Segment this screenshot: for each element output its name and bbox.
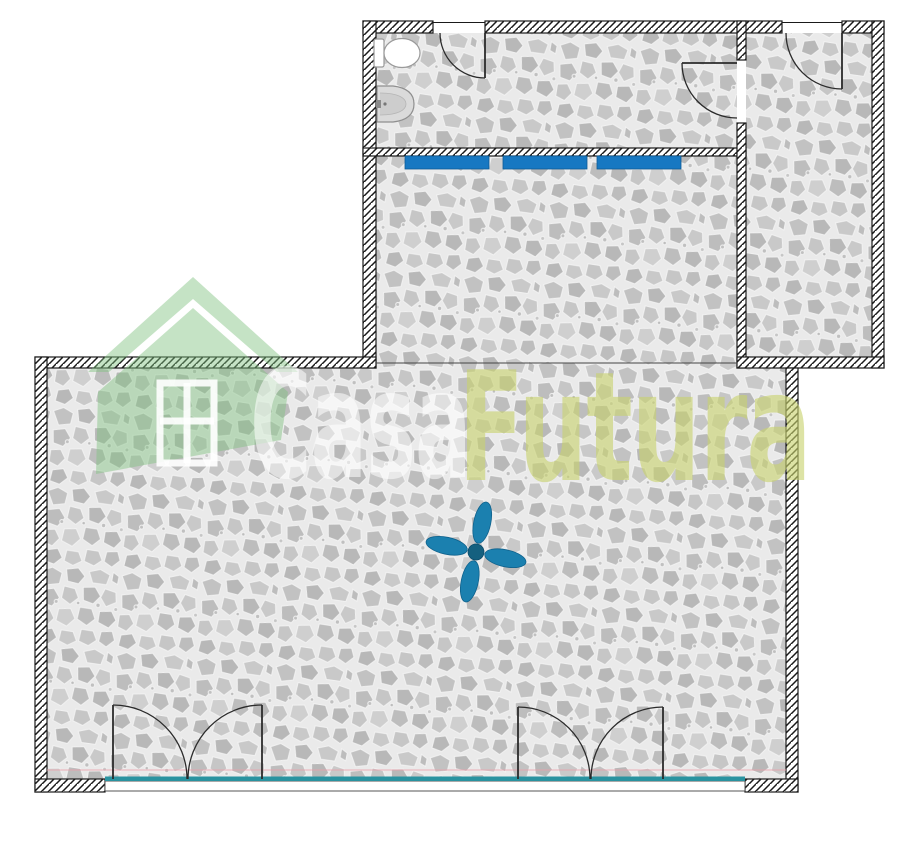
glazed-wall-sill <box>105 781 745 791</box>
room-floor-middle-room <box>376 156 737 363</box>
wall-bottom-seg-left <box>35 779 105 792</box>
fan-hub <box>468 544 484 560</box>
sink-drain <box>383 102 386 105</box>
room-floor-right-room <box>746 33 872 357</box>
wall-unit-2 <box>503 156 587 169</box>
glazed-wall-glass-line <box>105 777 745 782</box>
wall-vertical-divider-bottom <box>737 123 746 368</box>
wall-unit-1 <box>405 156 489 169</box>
wall-bottom-seg-right <box>745 779 798 792</box>
wall-hall-divider <box>363 148 746 156</box>
wall-unit-3 <box>597 156 681 169</box>
room-floor-top-hall <box>376 33 737 148</box>
watermark-text-futura: Futura <box>458 341 811 517</box>
wall-units <box>405 156 681 169</box>
wall-main-room-left <box>35 357 47 792</box>
watermark-text-casa: Casa <box>250 338 471 513</box>
toilet-icon <box>374 39 420 68</box>
toilet-bowl <box>384 39 420 68</box>
sink-icon <box>376 86 414 122</box>
wall-outer-right <box>872 21 884 368</box>
wall-vertical-divider-top <box>737 21 746 60</box>
toilet-tank <box>374 39 384 67</box>
floor-plan-drawing: Casa Futura <box>0 0 920 851</box>
wall-upper-left <box>363 21 376 368</box>
floor-plan-canvas: Casa Futura <box>0 0 920 851</box>
sink-faucet <box>376 100 381 108</box>
